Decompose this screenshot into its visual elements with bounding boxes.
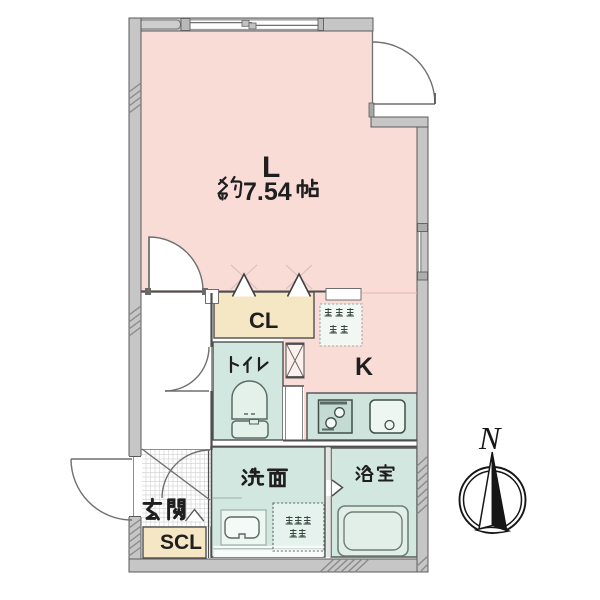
svg-text:CL: CL (249, 308, 278, 333)
svg-text:7.54: 7.54 (243, 178, 292, 206)
svg-text:N: N (478, 420, 502, 456)
svg-text:SCL: SCL (160, 531, 202, 554)
svg-text:K: K (355, 353, 373, 381)
